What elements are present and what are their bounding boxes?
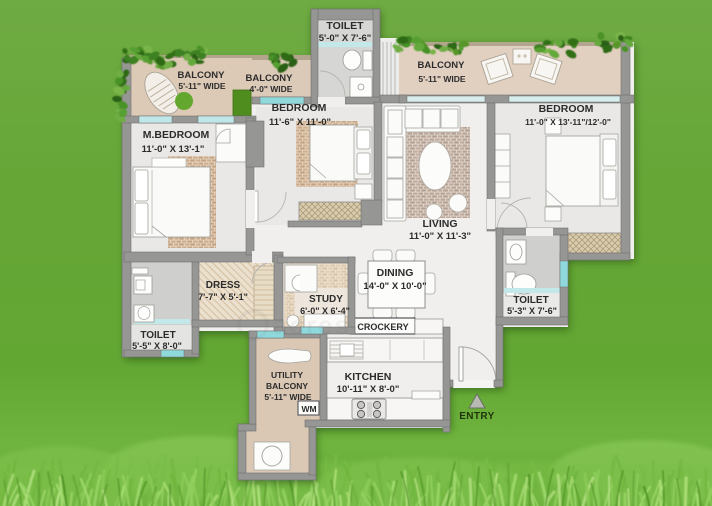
svg-text:14'-0" X 10'-0": 14'-0" X 10'-0" — [363, 281, 426, 292]
svg-text:DRESS: DRESS — [206, 280, 241, 291]
svg-text:BALCONY: BALCONY — [418, 60, 466, 71]
svg-text:WM: WM — [301, 404, 316, 414]
svg-text:BALCONY: BALCONY — [266, 381, 308, 391]
svg-text:11'-0" X 13'-1": 11'-0" X 13'-1" — [142, 144, 205, 155]
svg-text:BEDROOM: BEDROOM — [539, 103, 594, 115]
svg-text:UTILITY: UTILITY — [271, 370, 303, 380]
svg-text:5'-11" WIDE: 5'-11" WIDE — [418, 74, 465, 84]
svg-text:11'-0" X 11'-3": 11'-0" X 11'-3" — [409, 231, 471, 242]
svg-text:BALCONY: BALCONY — [246, 73, 294, 84]
svg-text:LIVING: LIVING — [422, 218, 457, 230]
svg-text:5'-5" X 8'-0": 5'-5" X 8'-0" — [132, 341, 182, 351]
svg-text:7'-7" X 5'-1": 7'-7" X 5'-1" — [198, 292, 248, 302]
svg-text:BEDROOM: BEDROOM — [272, 102, 327, 114]
svg-text:5'-11" WIDE: 5'-11" WIDE — [264, 392, 311, 402]
svg-text:ENTRY: ENTRY — [459, 411, 495, 422]
svg-text:TOILET: TOILET — [326, 20, 364, 32]
svg-text:5'-11" WIDE: 5'-11" WIDE — [178, 81, 225, 91]
svg-text:STUDY: STUDY — [309, 294, 343, 305]
svg-text:CROCKERY: CROCKERY — [357, 322, 408, 332]
svg-text:5'-0" X 7'-6": 5'-0" X 7'-6" — [319, 33, 372, 44]
svg-text:TOILET: TOILET — [140, 330, 175, 341]
svg-text:5'-3" X 7'-6": 5'-3" X 7'-6" — [507, 306, 557, 316]
svg-text:TOILET: TOILET — [513, 295, 548, 306]
svg-text:M.BEDROOM: M.BEDROOM — [143, 129, 210, 141]
svg-text:KITCHEN: KITCHEN — [345, 371, 392, 383]
svg-text:4'-0" WIDE: 4'-0" WIDE — [250, 84, 293, 94]
svg-text:DINING: DINING — [377, 267, 414, 279]
svg-text:11'-0" X 13'-11"/12'-0": 11'-0" X 13'-11"/12'-0" — [525, 117, 611, 127]
svg-text:11'-6" X 11'-0": 11'-6" X 11'-0" — [269, 117, 331, 128]
svg-text:BALCONY: BALCONY — [178, 70, 226, 81]
svg-text:10'-11" X 8'-0": 10'-11" X 8'-0" — [337, 384, 400, 395]
svg-text:6'-0" X 6'-4": 6'-0" X 6'-4" — [300, 306, 350, 316]
